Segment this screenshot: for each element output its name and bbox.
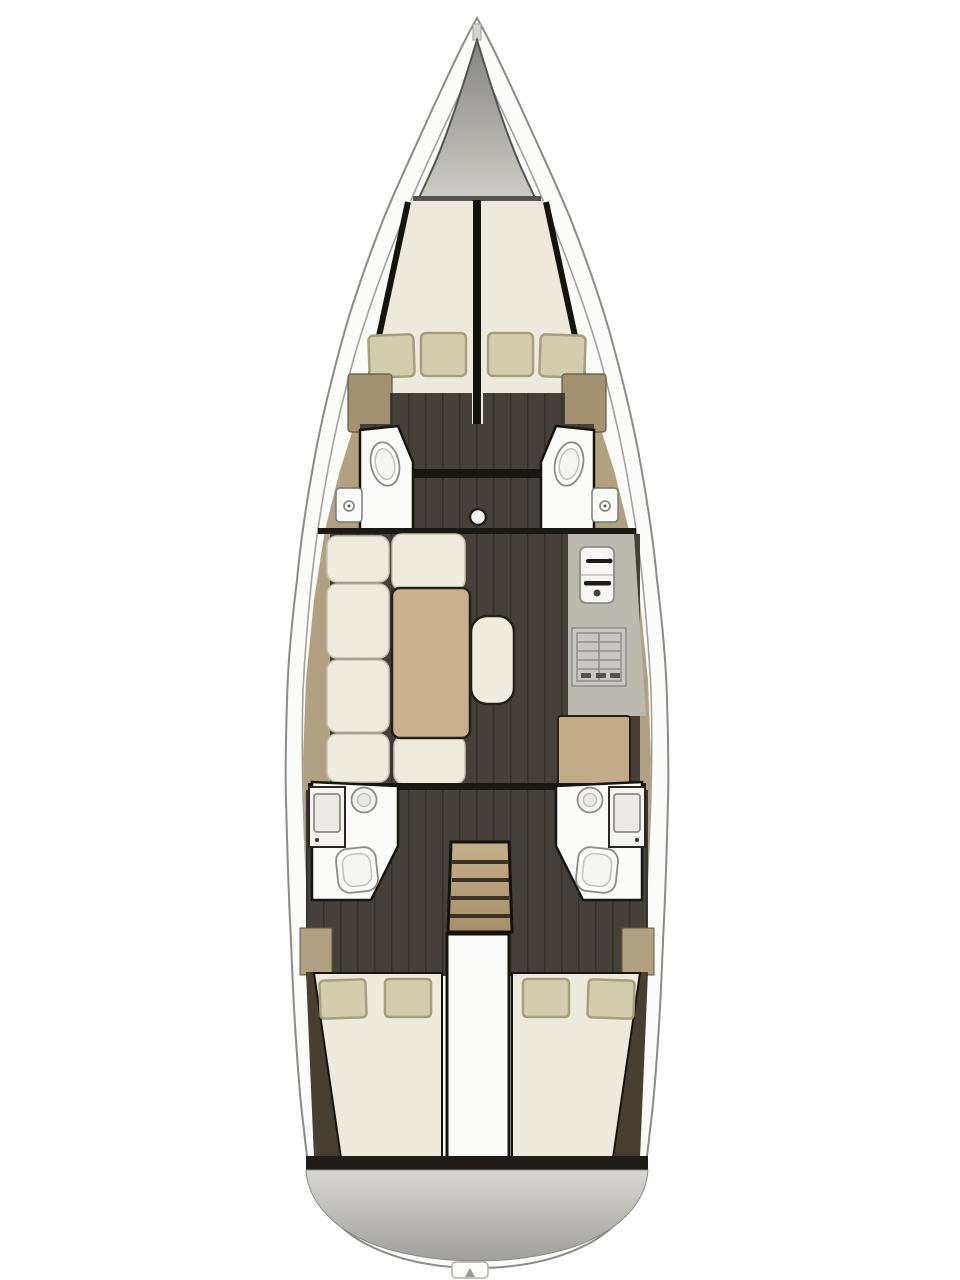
pillow <box>385 979 431 1017</box>
yacht-floor-plan-page <box>0 0 960 1280</box>
salon-table <box>392 588 470 738</box>
pillow <box>421 333 466 376</box>
galley-stove <box>572 628 626 686</box>
pillow <box>488 333 533 376</box>
aft-locker-starboard <box>622 928 654 975</box>
pillow <box>319 979 366 1019</box>
pillow <box>523 979 569 1017</box>
shower-head <box>358 794 371 807</box>
yacht-floor-plan <box>0 0 960 1280</box>
basin-drain <box>348 505 351 508</box>
engine-compartment-panel <box>447 934 509 1162</box>
stair-tread <box>452 878 509 882</box>
pillow <box>587 979 634 1019</box>
toilet-seat <box>341 853 372 888</box>
sofa-cushion <box>327 734 389 782</box>
sofa-cushion <box>327 660 389 732</box>
toilet-seat <box>581 853 612 888</box>
wardrobe-port <box>348 374 392 432</box>
stair-tread <box>451 896 509 900</box>
sofa-cushion <box>394 736 465 784</box>
basin <box>614 794 640 832</box>
galley-sink <box>580 547 614 603</box>
center-bench <box>471 616 514 704</box>
basin <box>314 794 340 832</box>
forward-bulkhead-doors <box>408 469 550 478</box>
stair-tread <box>452 860 508 864</box>
stern-ladder-tab <box>452 1262 488 1278</box>
galley <box>568 534 646 716</box>
companionway-stairs <box>448 842 512 932</box>
stair-tread <box>450 914 510 918</box>
pillow <box>368 334 414 378</box>
salon-forward-bulkhead <box>318 528 636 534</box>
basin-drain <box>604 505 607 508</box>
shower-head <box>584 794 597 807</box>
sofa-cushion <box>327 584 389 658</box>
forward-cabin-divider <box>473 200 481 432</box>
aft-locker-port <box>300 928 332 975</box>
pillow <box>539 334 585 378</box>
sink-drain <box>594 590 601 597</box>
mast-base <box>470 509 486 525</box>
wardrobe-starboard <box>562 374 606 432</box>
sofa-cushion <box>392 534 465 590</box>
berth-foot-board <box>306 1156 648 1170</box>
faucet <box>586 559 609 563</box>
swim-platform <box>306 1170 648 1261</box>
sofa-cushion <box>327 536 389 582</box>
